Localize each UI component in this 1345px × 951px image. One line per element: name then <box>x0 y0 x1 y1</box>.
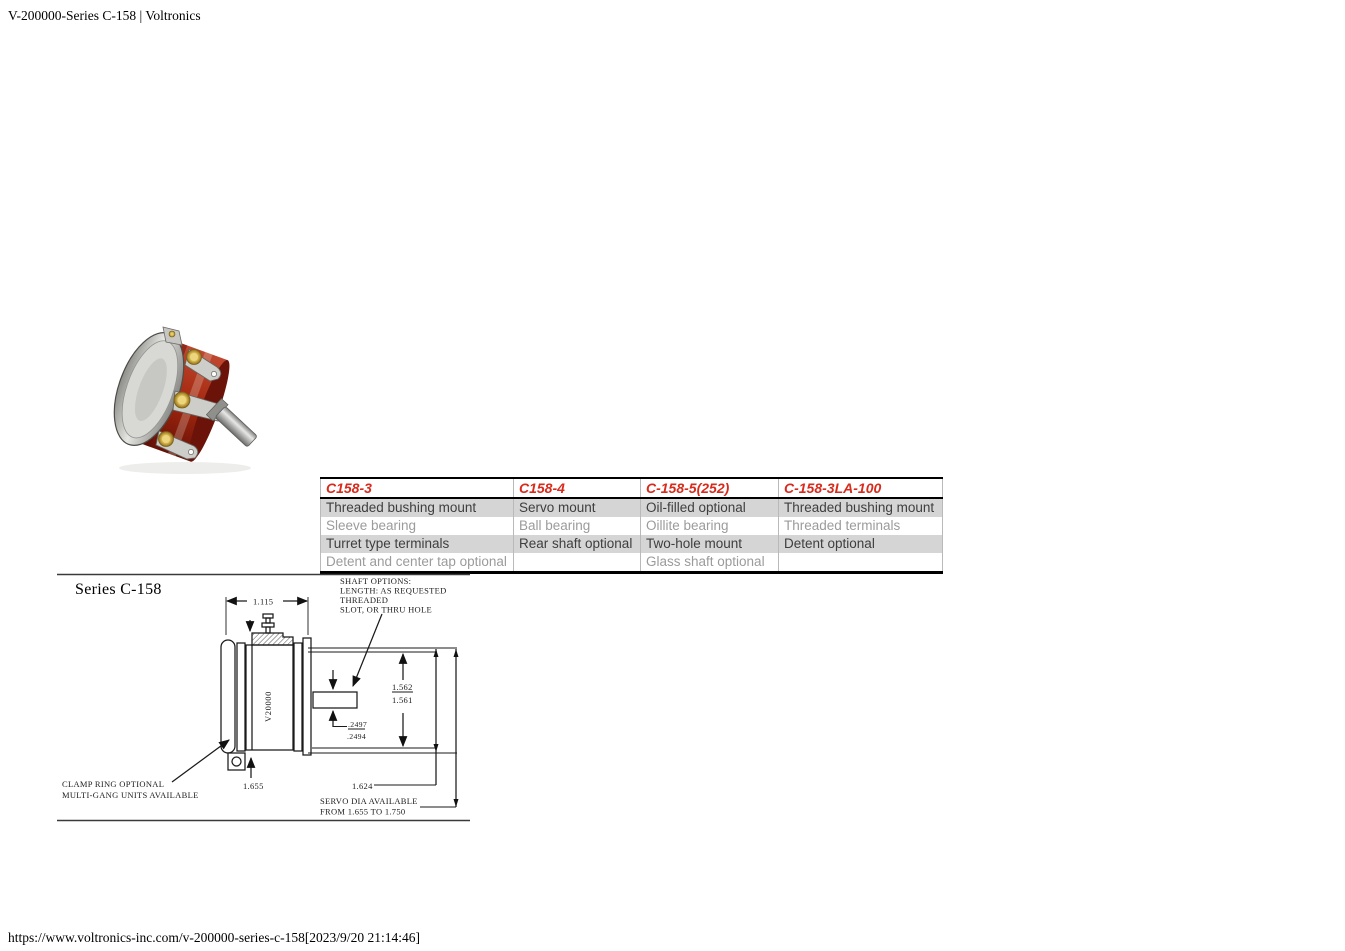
pot-top-tab <box>163 327 182 345</box>
clamp-ring-arrow <box>172 740 229 782</box>
dim-label-shaft-dia-lower: .2494 <box>347 732 366 741</box>
spec-cell: Threaded bushing mount <box>321 498 514 517</box>
shaft-dia-arrows <box>333 670 347 727</box>
potentiometer-product-photo <box>105 318 263 478</box>
shaft-options-line: SHAFT OPTIONS: <box>340 576 411 586</box>
spec-row: Sleeve bearing Ball bearing Oillite bear… <box>321 517 943 535</box>
spec-row: Turret type terminals Rear shaft optiona… <box>321 535 943 553</box>
dim-label-dia-lower: 1.561 <box>392 695 413 705</box>
spec-cell: Servo mount <box>514 498 641 517</box>
spec-cell: Detent optional <box>779 535 943 553</box>
spec-cell <box>779 553 943 573</box>
spec-row: Threaded bushing mount Servo mount Oil-f… <box>321 498 943 517</box>
spec-cell <box>514 553 641 573</box>
dim-label-shaft-dia-upper: .2497 <box>348 720 367 729</box>
shaft-options-line: SLOT, OR THRU HOLE <box>340 605 432 615</box>
technical-drawing: 1.115 SHAFT OPTIONS: LENGTH: AS REQUESTE… <box>57 573 470 823</box>
pot-shaft <box>206 399 259 451</box>
shaft-options-line: THREADED <box>340 595 388 605</box>
spec-cell: Glass shaft optional <box>641 553 779 573</box>
reference-lines <box>308 648 457 753</box>
spec-cell: Threaded bushing mount <box>779 498 943 517</box>
footer-url: https://www.voltronics-inc.com/v-200000-… <box>8 930 420 946</box>
spec-header-row: C158-3 C158-4 C-158-5(252) C-158-3LA-100 <box>321 478 943 498</box>
housing-outline <box>237 614 357 755</box>
dim-label-servo-pilot: 1.624 <box>352 781 373 791</box>
spec-cell: Rear shaft optional <box>514 535 641 553</box>
page-title: V-200000-Series C-158 | Voltronics <box>8 8 201 24</box>
clamp-note-line: CLAMP RING OPTIONAL <box>62 779 164 789</box>
body-part-label: V20000 <box>263 691 273 722</box>
servo-note-line: FROM 1.655 TO 1.750 <box>320 807 405 817</box>
dim-servo-dia <box>420 649 459 807</box>
spec-cell: Ball bearing <box>514 517 641 535</box>
spec-cell: Two-hole mount <box>641 535 779 553</box>
shaft-options-line: LENGTH: AS REQUESTED <box>340 586 447 596</box>
model-spec-table: C158-3 C158-4 C-158-5(252) C-158-3LA-100… <box>320 477 943 574</box>
model-header: C-158-5(252) <box>641 478 779 498</box>
spec-cell: Turret type terminals <box>321 535 514 553</box>
spec-cell: Detent and center tap optional <box>321 553 514 573</box>
spec-cell: Oil-filled optional <box>641 498 779 517</box>
servo-note-line: SERVO DIA AVAILABLE <box>320 796 418 806</box>
spec-cell: Oillite bearing <box>641 517 779 535</box>
spec-row: Detent and center tap optional Glass sha… <box>321 553 943 573</box>
model-header: C158-4 <box>514 478 641 498</box>
shaft-options-arrow <box>353 614 382 686</box>
model-header: C158-3 <box>321 478 514 498</box>
clamp-note-line: MULTI-GANG UNITS AVAILABLE <box>62 790 199 800</box>
dim-label-dia-upper: 1.562 <box>392 682 413 692</box>
dim-servo-pilot-1624 <box>374 649 439 785</box>
spec-cell: Sleeve bearing <box>321 517 514 535</box>
dim-label-housing-width: 1.115 <box>253 597 273 607</box>
dim-label-flange-dia: 1.655 <box>243 781 264 791</box>
model-header: C-158-3LA-100 <box>779 478 943 498</box>
spec-cell: Threaded terminals <box>779 517 943 535</box>
photo-shadow <box>119 462 251 474</box>
